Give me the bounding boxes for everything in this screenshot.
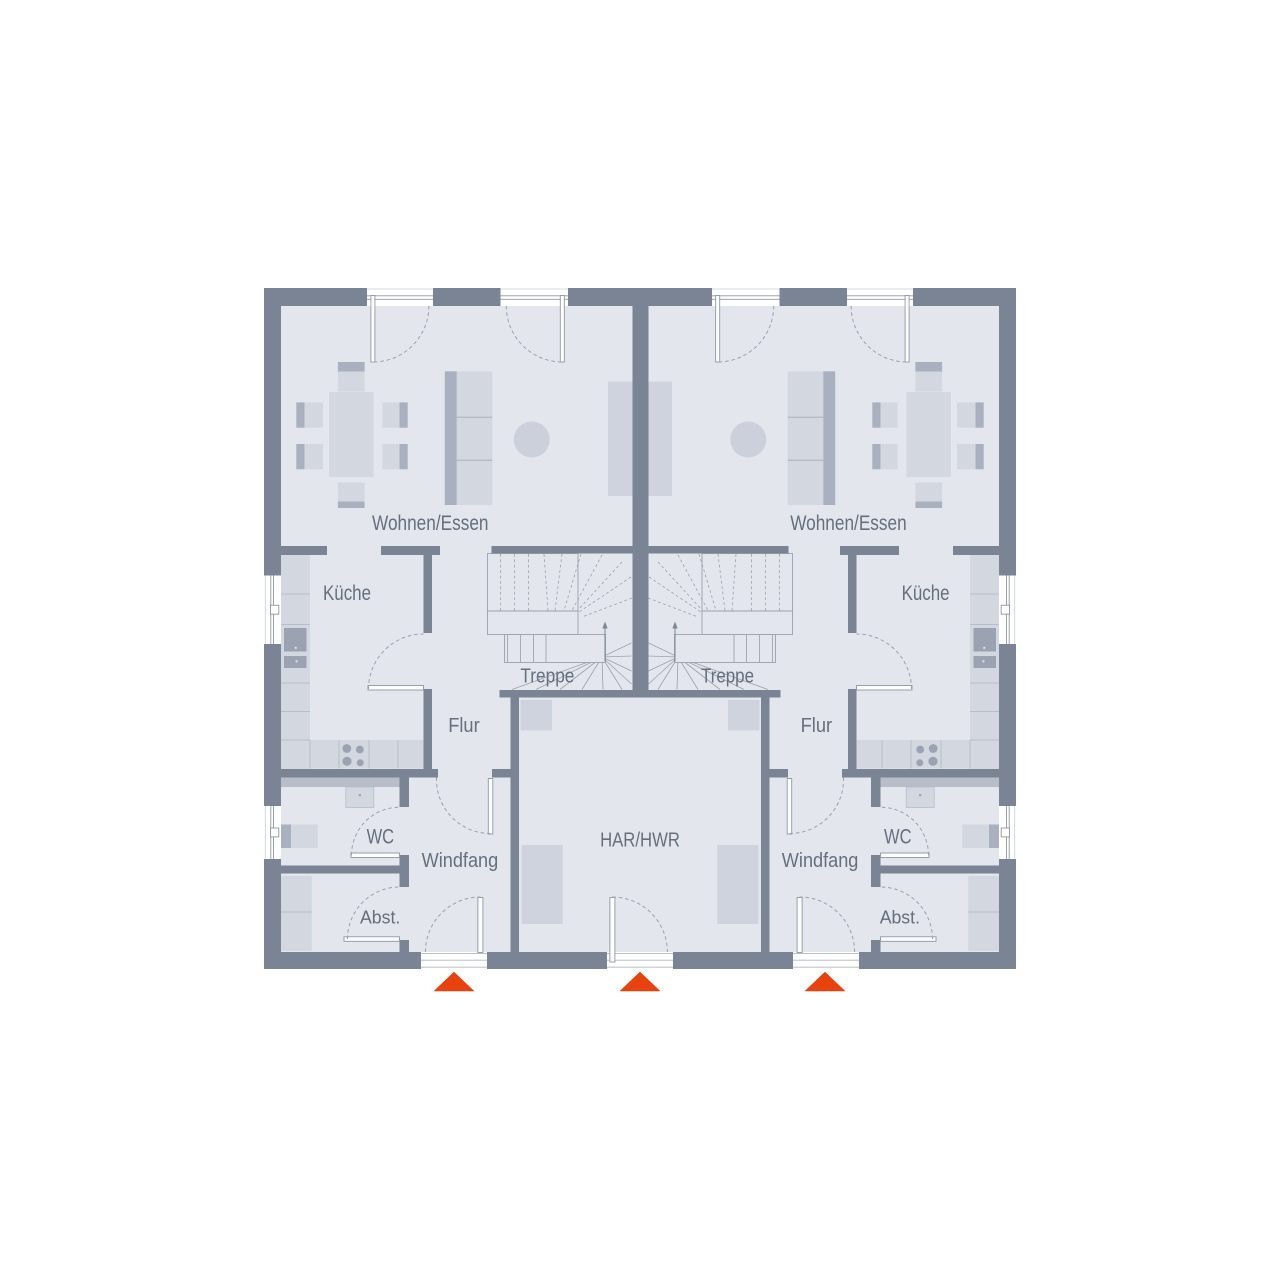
svg-text:Treppe: Treppe <box>520 664 574 687</box>
svg-text:Windfang: Windfang <box>422 849 499 872</box>
svg-text:HAR/HWR: HAR/HWR <box>600 829 680 851</box>
svg-text:WC: WC <box>367 825 395 849</box>
svg-text:Abst.: Abst. <box>360 907 400 927</box>
svg-text:Abst.: Abst. <box>880 907 920 927</box>
svg-text:Flur: Flur <box>801 714 833 737</box>
svg-text:Küche: Küche <box>902 581 950 605</box>
svg-text:Treppe: Treppe <box>701 664 754 687</box>
svg-text:Küche: Küche <box>323 581 371 605</box>
svg-text:Windfang: Windfang <box>782 849 859 872</box>
svg-text:Wohnen/Essen: Wohnen/Essen <box>790 512 907 535</box>
svg-text:WC: WC <box>884 825 912 849</box>
svg-text:Wohnen/Essen: Wohnen/Essen <box>372 512 489 535</box>
svg-text:Flur: Flur <box>448 714 480 737</box>
